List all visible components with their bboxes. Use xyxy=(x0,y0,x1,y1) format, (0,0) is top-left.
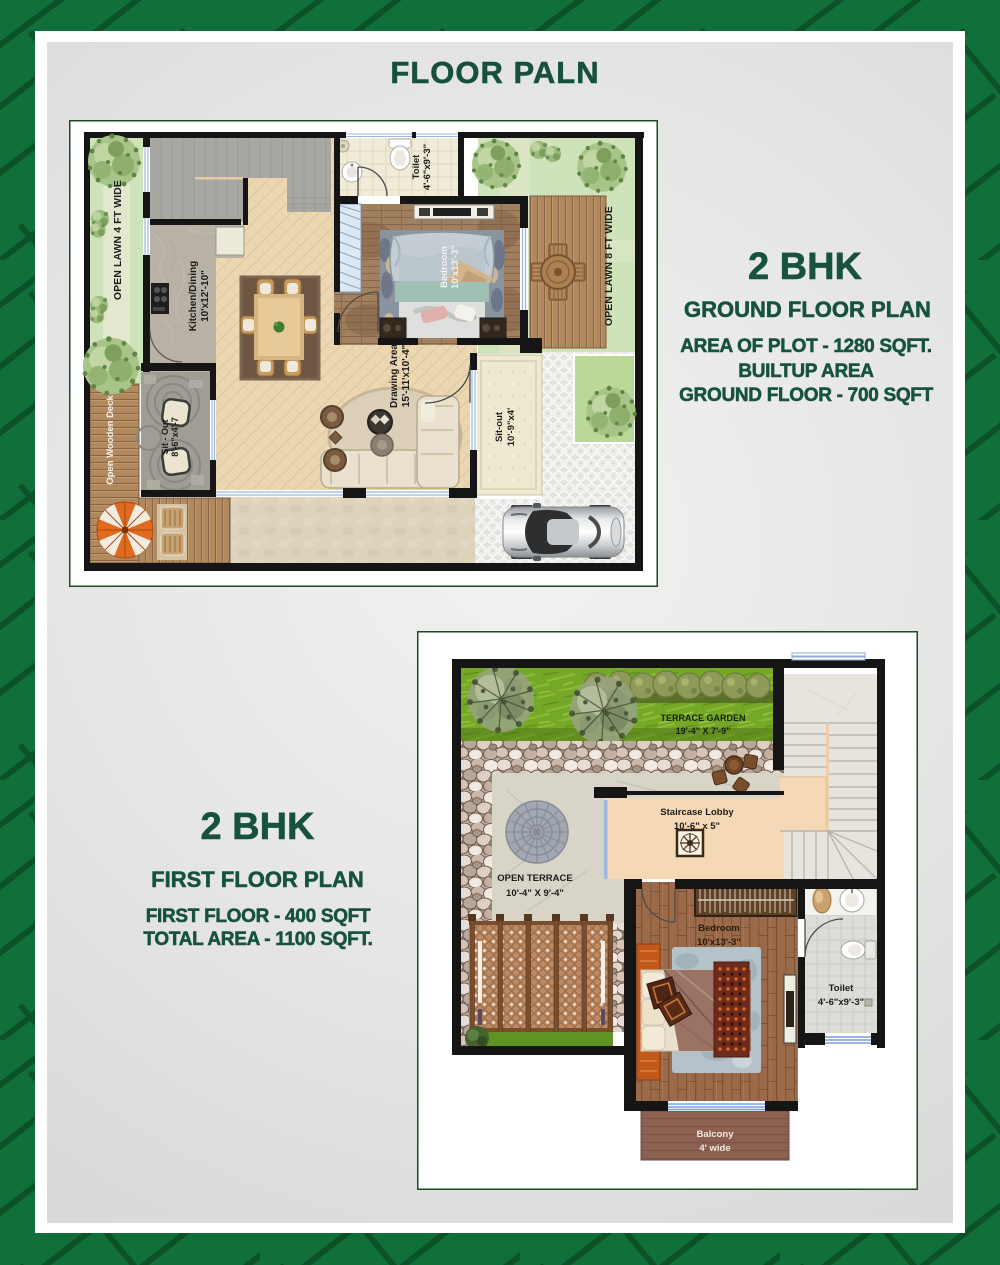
svg-text:TERRACE GARDEN: TERRACE GARDEN xyxy=(660,713,745,723)
svg-text:OPEN TERRACE: OPEN TERRACE xyxy=(497,873,572,884)
svg-text:Open Wooden Deck: Open Wooden Deck xyxy=(105,395,116,485)
svg-text:Balcony: Balcony xyxy=(697,1129,735,1140)
svg-text:10'x13'-3": 10'x13'-3" xyxy=(450,245,461,289)
svg-text:10'-6" x 5": 10'-6" x 5" xyxy=(674,821,720,832)
svg-text:4'-6"x9'-3": 4'-6"x9'-3" xyxy=(818,997,864,1008)
svg-text:OPEN LAWN 8 FT WIDE: OPEN LAWN 8 FT WIDE xyxy=(604,206,615,326)
svg-text:4' wide: 4' wide xyxy=(699,1143,730,1154)
svg-text:10'x13'-3": 10'x13'-3" xyxy=(697,937,741,948)
svg-text:Toilet: Toilet xyxy=(411,154,422,179)
svg-text:Kitchen/Dining: Kitchen/Dining xyxy=(188,261,199,332)
svg-text:Sit - Out: Sit - Out xyxy=(160,420,170,455)
svg-text:Drawing Area: Drawing Area xyxy=(389,344,400,409)
svg-text:Bedroom: Bedroom xyxy=(439,246,450,288)
svg-text:Staircase Lobby: Staircase Lobby xyxy=(660,807,734,818)
svg-text:Toilet: Toilet xyxy=(829,983,854,994)
svg-text:Bedroom: Bedroom xyxy=(698,923,740,934)
svg-text:4'-6"x9'-3": 4'-6"x9'-3" xyxy=(422,144,433,190)
svg-text:15'-11'x10'-4": 15'-11'x10'-4" xyxy=(401,345,412,408)
svg-text:10'-9"x4': 10'-9"x4' xyxy=(506,408,517,447)
svg-text:10'x12'-10": 10'x12'-10" xyxy=(200,270,211,322)
svg-text:Sit-out: Sit-out xyxy=(494,411,505,442)
svg-text:OPEN LAWN 4 FT WIDE: OPEN LAWN 4 FT WIDE xyxy=(113,180,124,300)
svg-text:10'-4" X 9'-4": 10'-4" X 9'-4" xyxy=(506,888,564,899)
svg-text:19'-4" X 7'-9": 19'-4" X 7'-9" xyxy=(676,726,731,736)
svg-text:8'-6"x4'-7: 8'-6"x4'-7 xyxy=(170,417,180,457)
